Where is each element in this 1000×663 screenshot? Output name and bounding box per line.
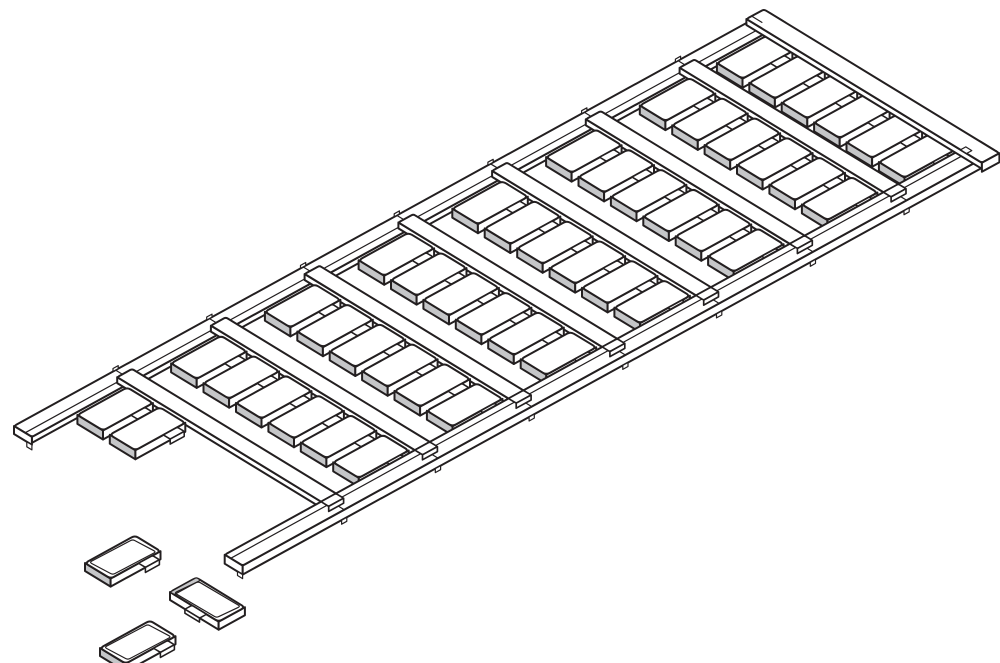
cross-ribs <box>117 60 904 512</box>
illustration-canvas <box>0 0 1000 663</box>
loose-marker-tag <box>100 622 176 663</box>
loose-marker-tag <box>170 578 245 630</box>
marker-strip-drawing <box>0 0 1000 663</box>
loose-marker-tag <box>85 537 161 587</box>
loose-marker-tags <box>85 537 245 663</box>
